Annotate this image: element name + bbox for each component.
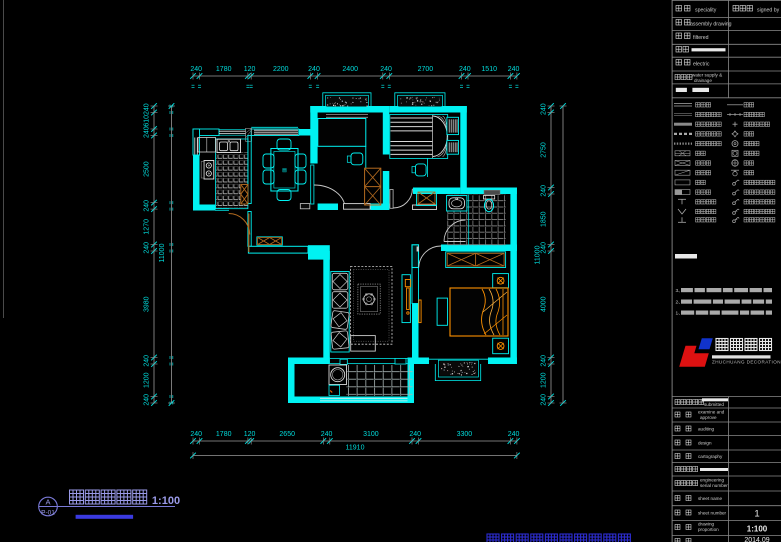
svg-text:serial number: serial number (700, 483, 728, 488)
svg-text:3980: 3980 (144, 296, 151, 312)
svg-text:11000: 11000 (159, 243, 166, 262)
svg-text:submitted: submitted (704, 402, 724, 407)
svg-text:signed by: signed by (757, 8, 780, 14)
svg-text:240: 240 (541, 394, 548, 406)
svg-text:assembly drawing: assembly drawing (690, 22, 732, 28)
svg-text:1780: 1780 (216, 66, 232, 73)
svg-text:240: 240 (508, 431, 520, 438)
svg-text:2200: 2200 (273, 66, 289, 73)
svg-text:240: 240 (459, 66, 471, 73)
svg-text:240: 240 (190, 431, 202, 438)
svg-text:120: 120 (244, 431, 256, 438)
svg-text:240: 240 (508, 66, 520, 73)
svg-text:240: 240 (541, 242, 548, 254)
svg-text:120: 120 (244, 66, 256, 73)
svg-text:240: 240 (541, 103, 548, 115)
svg-text:cartography: cartography (698, 454, 723, 459)
svg-text:filtered: filtered (693, 35, 709, 41)
svg-text:1850: 1850 (541, 211, 548, 227)
svg-text:3300: 3300 (457, 431, 473, 438)
svg-text:2014.09: 2014.09 (744, 537, 769, 542)
svg-text:electric: electric (693, 62, 710, 68)
svg-text:▤: ▤ (282, 168, 287, 174)
svg-text:2750: 2750 (541, 142, 548, 158)
svg-text:2700: 2700 (418, 66, 434, 73)
svg-text:240: 240 (308, 66, 320, 73)
svg-text:240: 240 (144, 394, 151, 406)
svg-text:2400: 2400 (342, 66, 358, 73)
svg-text:11000: 11000 (535, 245, 542, 264)
svg-text:3100: 3100 (363, 431, 379, 438)
svg-text:sheet name: sheet name (698, 496, 722, 501)
svg-text:1: 1 (754, 509, 759, 520)
svg-text:240: 240 (541, 355, 548, 367)
svg-text:240: 240 (144, 200, 151, 212)
svg-text:drawing: drawing (698, 522, 715, 527)
svg-text:240: 240 (541, 185, 548, 197)
svg-text:1780: 1780 (216, 431, 232, 438)
svg-text:610: 610 (144, 115, 151, 127)
svg-text:P-01: P-01 (41, 510, 55, 517)
svg-text:1510: 1510 (481, 66, 497, 73)
svg-text:240: 240 (190, 66, 202, 73)
svg-text:engineering: engineering (700, 478, 724, 483)
svg-text:design: design (698, 441, 712, 446)
svg-text:sheet number: sheet number (698, 511, 727, 516)
svg-text:4000: 4000 (541, 296, 548, 312)
svg-text:240: 240 (144, 103, 151, 115)
svg-text:ZHUCHUANG DECORATION: ZHUCHUANG DECORATION (712, 360, 781, 365)
svg-text:1200: 1200 (144, 372, 151, 388)
svg-text:240: 240 (380, 66, 392, 73)
svg-text:2500: 2500 (144, 161, 151, 177)
svg-text:240: 240 (144, 126, 151, 138)
svg-text:water supply &: water supply & (692, 73, 722, 78)
svg-text:1200: 1200 (541, 372, 548, 388)
svg-text:1:100: 1:100 (747, 525, 768, 534)
svg-text:examine and: examine and (698, 410, 725, 415)
svg-text:11910: 11910 (346, 445, 365, 452)
svg-text:1:100: 1:100 (152, 495, 180, 507)
svg-text:speciality: speciality (695, 8, 717, 14)
svg-text:240: 240 (144, 242, 151, 254)
svg-text:auditing: auditing (698, 427, 715, 432)
svg-text:drainage: drainage (694, 78, 712, 83)
svg-text:1270: 1270 (144, 219, 151, 235)
svg-text:240: 240 (144, 355, 151, 367)
svg-text:240: 240 (321, 431, 333, 438)
svg-text:2650: 2650 (279, 431, 295, 438)
svg-text:A: A (45, 498, 50, 507)
svg-text:240: 240 (409, 431, 421, 438)
svg-text:proportion: proportion (698, 527, 719, 532)
svg-text:approve: approve (700, 415, 717, 420)
